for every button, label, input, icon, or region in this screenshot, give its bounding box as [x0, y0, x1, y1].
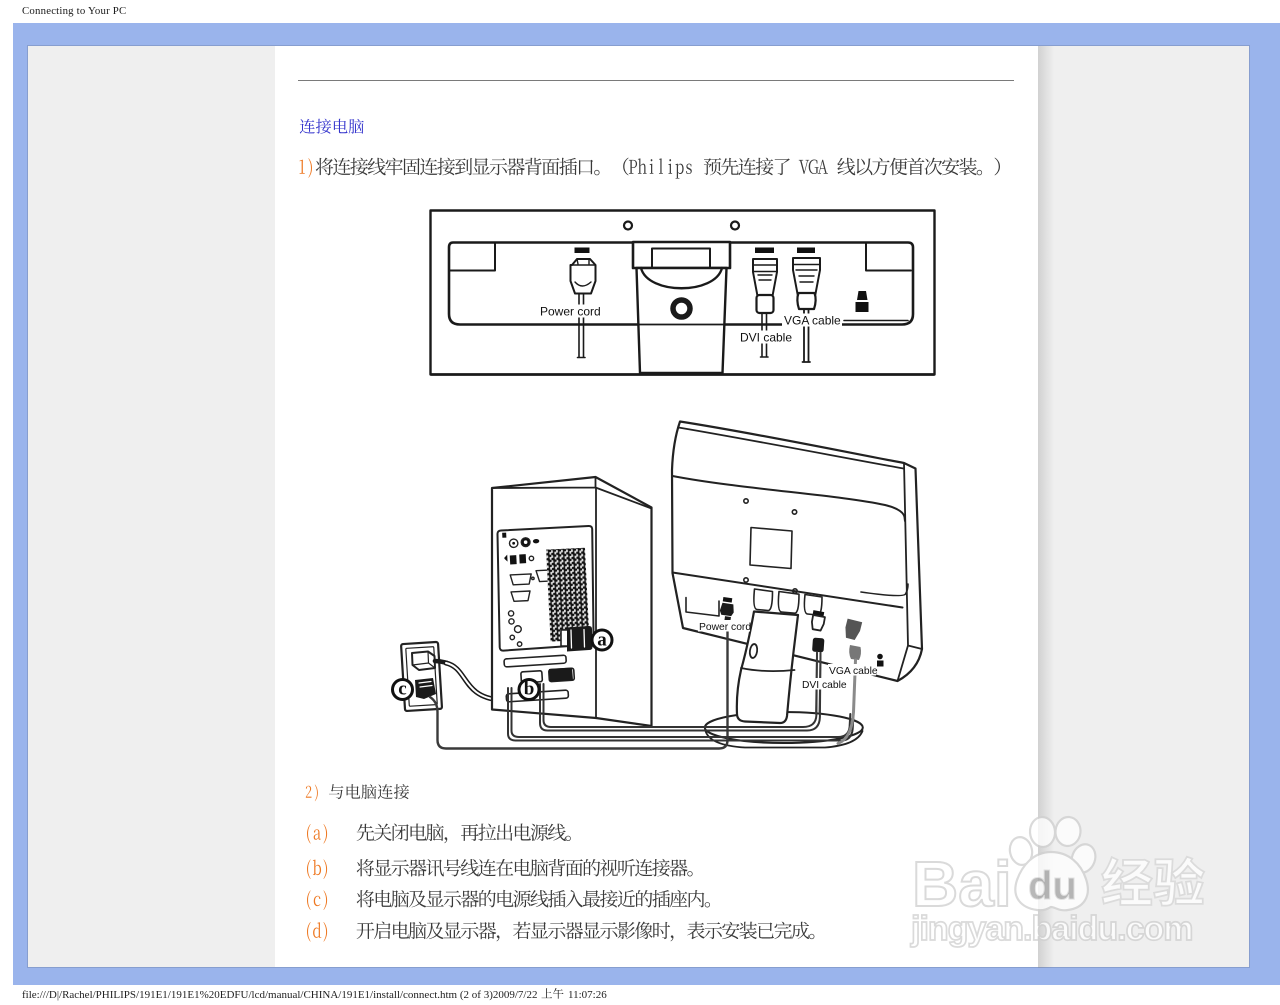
- svg-text:a: a: [597, 630, 607, 651]
- svg-text:Power cord: Power cord: [540, 305, 601, 319]
- svg-text:b: b: [524, 679, 535, 700]
- svg-text:DVI cable: DVI cable: [802, 680, 847, 691]
- svg-text:c: c: [398, 679, 406, 700]
- svg-text:DVI cable: DVI cable: [740, 331, 792, 345]
- svg-text:Power cord: Power cord: [699, 622, 751, 633]
- svg-text:VGA cable: VGA cable: [784, 314, 841, 328]
- svg-text:VGA cable: VGA cable: [829, 666, 878, 677]
